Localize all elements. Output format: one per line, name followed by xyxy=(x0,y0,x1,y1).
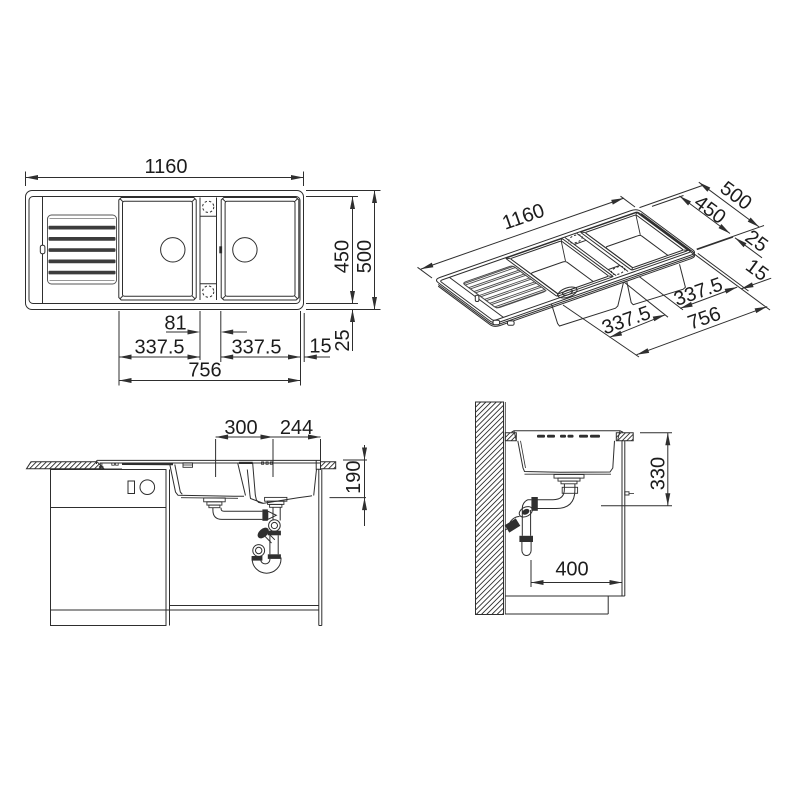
svg-text:337.5: 337.5 xyxy=(134,337,184,359)
svg-text:25: 25 xyxy=(332,329,354,351)
svg-text:81: 81 xyxy=(164,313,186,335)
svg-text:300: 300 xyxy=(224,417,257,439)
svg-text:337.5: 337.5 xyxy=(231,337,281,359)
svg-text:500: 500 xyxy=(354,240,376,273)
svg-text:190: 190 xyxy=(343,461,365,494)
svg-text:330: 330 xyxy=(648,457,670,490)
svg-text:756: 756 xyxy=(188,360,221,382)
svg-text:400: 400 xyxy=(555,559,588,581)
svg-text:450: 450 xyxy=(332,240,354,273)
svg-text:15: 15 xyxy=(309,336,331,358)
svg-text:244: 244 xyxy=(280,417,313,439)
svg-text:1160: 1160 xyxy=(144,156,187,178)
